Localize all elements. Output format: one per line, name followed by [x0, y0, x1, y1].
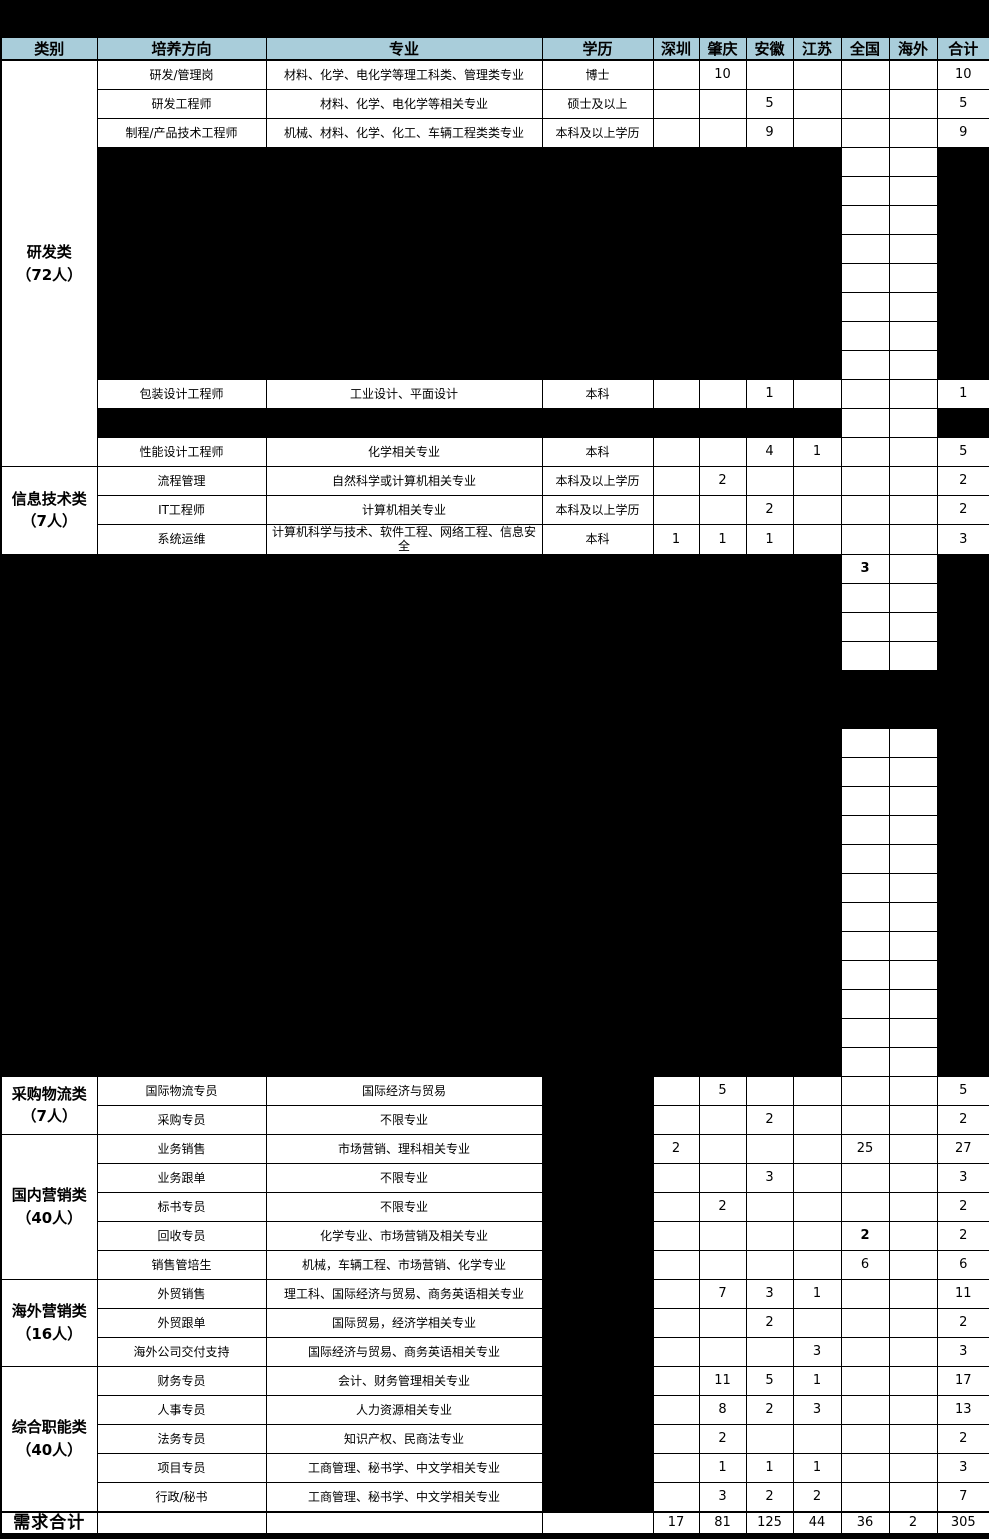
table-row: 海外公司交付支持国际经济与贸易、商务英语相关专业33 [1, 1337, 989, 1366]
redacted-row [1, 583, 989, 612]
cell-national: 6 [841, 1250, 889, 1279]
redacted-row [1, 728, 989, 757]
cell-anhui [746, 1134, 793, 1163]
cell-overseas [889, 1221, 937, 1250]
cell-total [937, 786, 989, 815]
cell-national [841, 60, 889, 90]
cell-shenzhen [653, 496, 699, 525]
cell-anhui: 2 [746, 496, 793, 525]
totals-anhui: 125 [746, 1512, 793, 1534]
cell-national [841, 1105, 889, 1134]
cell-major: 会计、财务管理相关专业 [266, 1366, 542, 1395]
cell-direction: 系统运维 [97, 525, 266, 555]
cell-overseas [889, 1453, 937, 1482]
cell-overseas [889, 1076, 937, 1105]
cell-total [937, 844, 989, 873]
redacted-block [97, 351, 841, 380]
cell-shenzhen [653, 1366, 699, 1395]
cell-zhaoqing [699, 1250, 746, 1279]
cell-zhaoqing [699, 1221, 746, 1250]
cell-overseas [889, 1366, 937, 1395]
cell-total [937, 902, 989, 931]
cell-degree: 博士 [542, 60, 653, 90]
table-row: 业务跟单不限专业33 [1, 1163, 989, 1192]
header-row: 类别培养方向专业学历深圳肇庆安徽江苏全国海外合计 [1, 37, 989, 60]
cell-shenzhen [653, 1395, 699, 1424]
redacted-block [97, 293, 841, 322]
cell-degree [542, 1337, 653, 1366]
cell-jiangsu [793, 525, 841, 555]
redacted-block [97, 264, 841, 293]
cell-overseas [889, 612, 937, 641]
totals-direction [97, 1512, 266, 1534]
redacted-block [97, 931, 841, 960]
cell-total: 2 [937, 496, 989, 525]
cell-total: 3 [937, 1163, 989, 1192]
cell-jiangsu [793, 1221, 841, 1250]
cell-national [841, 931, 889, 960]
cell-national [841, 1163, 889, 1192]
cell-total: 3 [937, 525, 989, 555]
table-row: 项目专员工商管理、秘书学、中文学相关专业1113 [1, 1453, 989, 1482]
cell-direction: 财务专员 [97, 1366, 266, 1395]
cell-total [937, 1018, 989, 1047]
cell-jiangsu: 1 [793, 1453, 841, 1482]
cell-total [937, 351, 989, 380]
cell-national [841, 786, 889, 815]
cell-overseas [889, 1047, 937, 1076]
cell-zhaoqing [699, 1163, 746, 1192]
cell-degree [542, 1424, 653, 1453]
cell-major: 计算机相关专业 [266, 496, 542, 525]
cell-overseas [889, 119, 937, 148]
redacted-block [97, 641, 841, 670]
cell-total: 1 [937, 380, 989, 409]
cell-jiangsu: 3 [793, 1337, 841, 1366]
cell-major: 材料、化学、电化学等相关专业 [266, 90, 542, 119]
totals-major [266, 1512, 542, 1534]
cell-total [937, 235, 989, 264]
redacted-block [97, 583, 841, 612]
cell-jiangsu [793, 1105, 841, 1134]
cell-overseas [889, 525, 937, 555]
table-row: 综合职能类 （40人）财务专员会计、财务管理相关专业115117 [1, 1366, 989, 1395]
column-header-direction: 培养方向 [97, 37, 266, 60]
cell-jiangsu [793, 1192, 841, 1221]
cell-zhaoqing: 10 [699, 60, 746, 90]
cell-overseas [889, 1279, 937, 1308]
cell-direction: 流程管理 [97, 467, 266, 496]
cell-direction: 项目专员 [97, 1453, 266, 1482]
cell-national [841, 148, 889, 177]
redacted-row [1, 960, 989, 989]
cell-total: 2 [937, 1221, 989, 1250]
cell-anhui: 2 [746, 1308, 793, 1337]
cell-national [841, 206, 889, 235]
cell-zhaoqing [699, 1105, 746, 1134]
cell-zhaoqing: 7 [699, 1279, 746, 1308]
cell-national [841, 1424, 889, 1453]
cell-overseas [889, 583, 937, 612]
cell-total: 7 [937, 1482, 989, 1512]
column-header-major: 专业 [266, 37, 542, 60]
cell-total: 17 [937, 1366, 989, 1395]
cell-overseas [889, 1134, 937, 1163]
cell-national [841, 438, 889, 467]
table-row: 销售管培生机械，车辆工程、市场营销、化学专业66 [1, 1250, 989, 1279]
table-row: 法务专员知识产权、民商法专业22 [1, 1424, 989, 1453]
cell-shenzhen [653, 1192, 699, 1221]
redacted-row [1, 670, 989, 699]
cell-shenzhen [653, 1163, 699, 1192]
cell-anhui: 2 [746, 1395, 793, 1424]
cell-degree [542, 1192, 653, 1221]
cell-degree: 本科及以上学历 [542, 467, 653, 496]
redacted-block [97, 206, 841, 235]
cell-overseas [889, 380, 937, 409]
cell-national [841, 1337, 889, 1366]
cell-degree [542, 1163, 653, 1192]
cell-shenzhen [653, 1482, 699, 1512]
redacted-row: 3 [1, 554, 989, 583]
cell-shenzhen [653, 1279, 699, 1308]
cell-degree [542, 1105, 653, 1134]
cell-total: 3 [937, 1337, 989, 1366]
cell-major: 工商管理、秘书学、中文学相关专业 [266, 1482, 542, 1512]
cell-degree [542, 1453, 653, 1482]
cell-national [841, 757, 889, 786]
cell-direction: 性能设计工程师 [97, 438, 266, 467]
cell-major: 市场营销、理科相关专业 [266, 1134, 542, 1163]
redacted-block [97, 757, 841, 786]
cell-national [841, 264, 889, 293]
cell-major: 材料、化学、电化学等理工科类、管理类专业 [266, 60, 542, 90]
cell-major: 理工科、国际经济与贸易、商务英语相关专业 [266, 1279, 542, 1308]
cell-overseas [889, 1105, 937, 1134]
cell-shenzhen [653, 1424, 699, 1453]
cell-direction: 回收专员 [97, 1221, 266, 1250]
cell-overseas [889, 1250, 937, 1279]
cell-anhui [746, 1192, 793, 1221]
redacted-row [1, 351, 989, 380]
cell-total [937, 264, 989, 293]
cell-national [841, 1018, 889, 1047]
cell-total: 3 [937, 1453, 989, 1482]
cell-major: 国际经济与贸易、商务英语相关专业 [266, 1337, 542, 1366]
cell-overseas [889, 815, 937, 844]
cell-shenzhen [653, 380, 699, 409]
redacted-block [97, 873, 841, 902]
cell-national [841, 699, 889, 728]
cell-overseas [889, 1337, 937, 1366]
totals-shenzhen: 17 [653, 1512, 699, 1534]
cell-direction: 业务跟单 [97, 1163, 266, 1192]
cell-anhui: 2 [746, 1482, 793, 1512]
cell-total: 10 [937, 60, 989, 90]
cell-direction: 标书专员 [97, 1192, 266, 1221]
redacted-row [1, 873, 989, 902]
redacted-block [97, 989, 841, 1018]
redacted-row [1, 902, 989, 931]
cell-jiangsu [793, 380, 841, 409]
cell-jiangsu [793, 1424, 841, 1453]
cell-major: 不限专业 [266, 1163, 542, 1192]
table-row: 国内营销类 （40人）业务销售市场营销、理科相关专业22527 [1, 1134, 989, 1163]
cell-degree: 本科及以上学历 [542, 119, 653, 148]
cell-anhui: 2 [746, 1105, 793, 1134]
cell-anhui: 5 [746, 90, 793, 119]
cell-total [937, 409, 989, 438]
cell-degree [542, 1279, 653, 1308]
cell-national [841, 612, 889, 641]
redacted-strip-bottom [0, 1535, 989, 1539]
redacted-row [1, 148, 989, 177]
cell-total [937, 670, 989, 699]
cell-overseas [889, 931, 937, 960]
cell-anhui [746, 467, 793, 496]
cell-total [937, 728, 989, 757]
cell-shenzhen [653, 1221, 699, 1250]
cell-anhui: 3 [746, 1163, 793, 1192]
redacted-block [97, 728, 841, 757]
cell-overseas [889, 235, 937, 264]
cell-zhaoqing [699, 1337, 746, 1366]
cell-total [937, 583, 989, 612]
cell-degree: 硕士及以上 [542, 90, 653, 119]
cell-major: 工商管理、秘书学、中文学相关专业 [266, 1453, 542, 1482]
table-row: IT工程师计算机相关专业本科及以上学历22 [1, 496, 989, 525]
cell-total [937, 177, 989, 206]
cell-jiangsu [793, 1163, 841, 1192]
cell-zhaoqing [699, 380, 746, 409]
recruitment-demand-page: { "colors": { "header_bg": "#a9cdda", "r… [0, 0, 989, 1539]
table-row: 性能设计工程师化学相关专业本科415 [1, 438, 989, 467]
redacted-block [97, 148, 841, 177]
cell-anhui [746, 1424, 793, 1453]
cell-overseas [889, 1482, 937, 1512]
cell-category-procurement-logistics: 采购物流类 （7人） [1, 1076, 97, 1134]
table-row: 制程/产品技术工程师机械、材料、化学、化工、车辆工程类类专业本科及以上学历99 [1, 119, 989, 148]
recruitment-demand-table: 类别培养方向专业学历深圳肇庆安徽江苏全国海外合计 研发类 （72人）研发/管理岗… [0, 36, 989, 1535]
cell-shenzhen: 2 [653, 1134, 699, 1163]
redacted-block [97, 409, 841, 438]
redacted-row [1, 931, 989, 960]
cell-national [841, 90, 889, 119]
cell-total [937, 1047, 989, 1076]
cell-overseas [889, 90, 937, 119]
redacted-row [1, 757, 989, 786]
cell-shenzhen [653, 1337, 699, 1366]
cell-category-it: 信息技术类 （7人） [1, 467, 97, 555]
cell-direction: 人事专员 [97, 1395, 266, 1424]
cell-national [841, 467, 889, 496]
cell-national [841, 1076, 889, 1105]
totals-label: 需求合计 [1, 1512, 97, 1534]
table-row: 海外营销类 （16人）外贸销售理工科、国际经济与贸易、商务英语相关专业73111 [1, 1279, 989, 1308]
cell-anhui [746, 1221, 793, 1250]
redacted-block [97, 815, 841, 844]
cell-overseas [889, 786, 937, 815]
cell-overseas [889, 177, 937, 206]
cell-total [937, 554, 989, 583]
cell-jiangsu: 1 [793, 438, 841, 467]
cell-zhaoqing: 3 [699, 1482, 746, 1512]
cell-zhaoqing: 2 [699, 467, 746, 496]
cell-direction: 外贸销售 [97, 1279, 266, 1308]
cell-national [841, 351, 889, 380]
redacted-row [1, 989, 989, 1018]
cell-total: 2 [937, 1424, 989, 1453]
cell-degree [542, 1076, 653, 1105]
cell-degree [542, 1250, 653, 1279]
cell-zhaoqing: 11 [699, 1366, 746, 1395]
redacted-block [97, 902, 841, 931]
cell-total [937, 815, 989, 844]
column-header-shenzhen: 深圳 [653, 37, 699, 60]
cell-zhaoqing [699, 90, 746, 119]
cell-anhui [746, 1337, 793, 1366]
cell-jiangsu [793, 496, 841, 525]
cell-zhaoqing [699, 1308, 746, 1337]
cell-jiangsu [793, 467, 841, 496]
cell-overseas [889, 902, 937, 931]
cell-degree: 本科 [542, 438, 653, 467]
cell-national [841, 1453, 889, 1482]
cell-total [937, 757, 989, 786]
cell-category-rd: 研发类 （72人） [1, 60, 97, 467]
cell-anhui [746, 1250, 793, 1279]
cell-total: 5 [937, 438, 989, 467]
cell-national [841, 873, 889, 902]
cell-major: 工业设计、平面设计 [266, 380, 542, 409]
column-header-overseas: 海外 [889, 37, 937, 60]
cell-total [937, 293, 989, 322]
cell-total [937, 322, 989, 351]
cell-national [841, 119, 889, 148]
redacted-row [1, 293, 989, 322]
cell-overseas [889, 670, 937, 699]
redacted-block [97, 1047, 841, 1076]
cell-overseas [889, 554, 937, 583]
redacted-strip-top [0, 0, 989, 36]
cell-total [937, 960, 989, 989]
cell-anhui [746, 1076, 793, 1105]
cell-degree: 本科 [542, 380, 653, 409]
table-row: 人事专员人力资源相关专业82313 [1, 1395, 989, 1424]
cell-degree [542, 1221, 653, 1250]
cell-direction: 法务专员 [97, 1424, 266, 1453]
cell-zhaoqing: 1 [699, 525, 746, 555]
cell-direction: 采购专员 [97, 1105, 266, 1134]
table-row: 行政/秘书工商管理、秘书学、中文学相关专业3227 [1, 1482, 989, 1512]
cell-direction: 外贸跟单 [97, 1308, 266, 1337]
cell-overseas [889, 293, 937, 322]
redacted-block [97, 786, 841, 815]
cell-national [841, 1482, 889, 1512]
table-row: 标书专员不限专业22 [1, 1192, 989, 1221]
cell-shenzhen [653, 467, 699, 496]
column-header-category: 类别 [1, 37, 97, 60]
cell-national [841, 235, 889, 264]
cell-jiangsu [793, 1308, 841, 1337]
cell-national [841, 496, 889, 525]
cell-major: 机械，车辆工程、市场营销、化学专业 [266, 1250, 542, 1279]
cell-total: 2 [937, 1308, 989, 1337]
cell-shenzhen [653, 1250, 699, 1279]
cell-total: 5 [937, 90, 989, 119]
cell-jiangsu: 1 [793, 1279, 841, 1308]
cell-zhaoqing [699, 1134, 746, 1163]
cell-national: 25 [841, 1134, 889, 1163]
redacted-block [97, 612, 841, 641]
cell-major: 国际贸易，经济学相关专业 [266, 1308, 542, 1337]
cell-national [841, 1279, 889, 1308]
redacted-row [1, 264, 989, 293]
table-row: 采购专员不限专业22 [1, 1105, 989, 1134]
cell-jiangsu [793, 90, 841, 119]
cell-overseas [889, 467, 937, 496]
cell-overseas [889, 496, 937, 525]
cell-national [841, 641, 889, 670]
cell-category-domestic-marketing: 国内营销类 （40人） [1, 1134, 97, 1279]
cell-zhaoqing: 5 [699, 1076, 746, 1105]
redacted-row [1, 786, 989, 815]
redacted-row [1, 206, 989, 235]
cell-total: 2 [937, 467, 989, 496]
cell-overseas [889, 1424, 937, 1453]
cell-direction: 国际物流专员 [97, 1076, 266, 1105]
column-header-national: 全国 [841, 37, 889, 60]
cell-national: 2 [841, 1221, 889, 1250]
cell-national [841, 815, 889, 844]
cell-jiangsu [793, 1076, 841, 1105]
cell-overseas [889, 264, 937, 293]
cell-total: 5 [937, 1076, 989, 1105]
cell-major: 知识产权、民商法专业 [266, 1424, 542, 1453]
cell-overseas [889, 1018, 937, 1047]
cell-direction: 包装设计工程师 [97, 380, 266, 409]
redacted-row [1, 322, 989, 351]
column-header-zhaoqing: 肇庆 [699, 37, 746, 60]
cell-zhaoqing [699, 496, 746, 525]
totals-jiangsu: 44 [793, 1512, 841, 1534]
cell-overseas [889, 409, 937, 438]
cell-total [937, 206, 989, 235]
redacted-block [97, 670, 841, 699]
cell-jiangsu: 2 [793, 1482, 841, 1512]
table-row: 回收专员化学专业、市场营销及相关专业22 [1, 1221, 989, 1250]
cell-national [841, 177, 889, 206]
cell-degree [542, 1395, 653, 1424]
redacted-block [97, 177, 841, 206]
redacted-block [97, 960, 841, 989]
cell-shenzhen [653, 1308, 699, 1337]
cell-jiangsu [793, 60, 841, 90]
cell-degree: 本科 [542, 525, 653, 555]
cell-overseas [889, 1395, 937, 1424]
cell-major: 自然科学或计算机相关专业 [266, 467, 542, 496]
cell-anhui: 3 [746, 1279, 793, 1308]
cell-national [841, 293, 889, 322]
cell-total: 11 [937, 1279, 989, 1308]
redacted-block [97, 1018, 841, 1047]
cell-direction: 销售管培生 [97, 1250, 266, 1279]
cell-anhui: 5 [746, 1366, 793, 1395]
cell-overseas [889, 206, 937, 235]
column-header-anhui: 安徽 [746, 37, 793, 60]
cell-total [937, 148, 989, 177]
cell-shenzhen [653, 1453, 699, 1482]
